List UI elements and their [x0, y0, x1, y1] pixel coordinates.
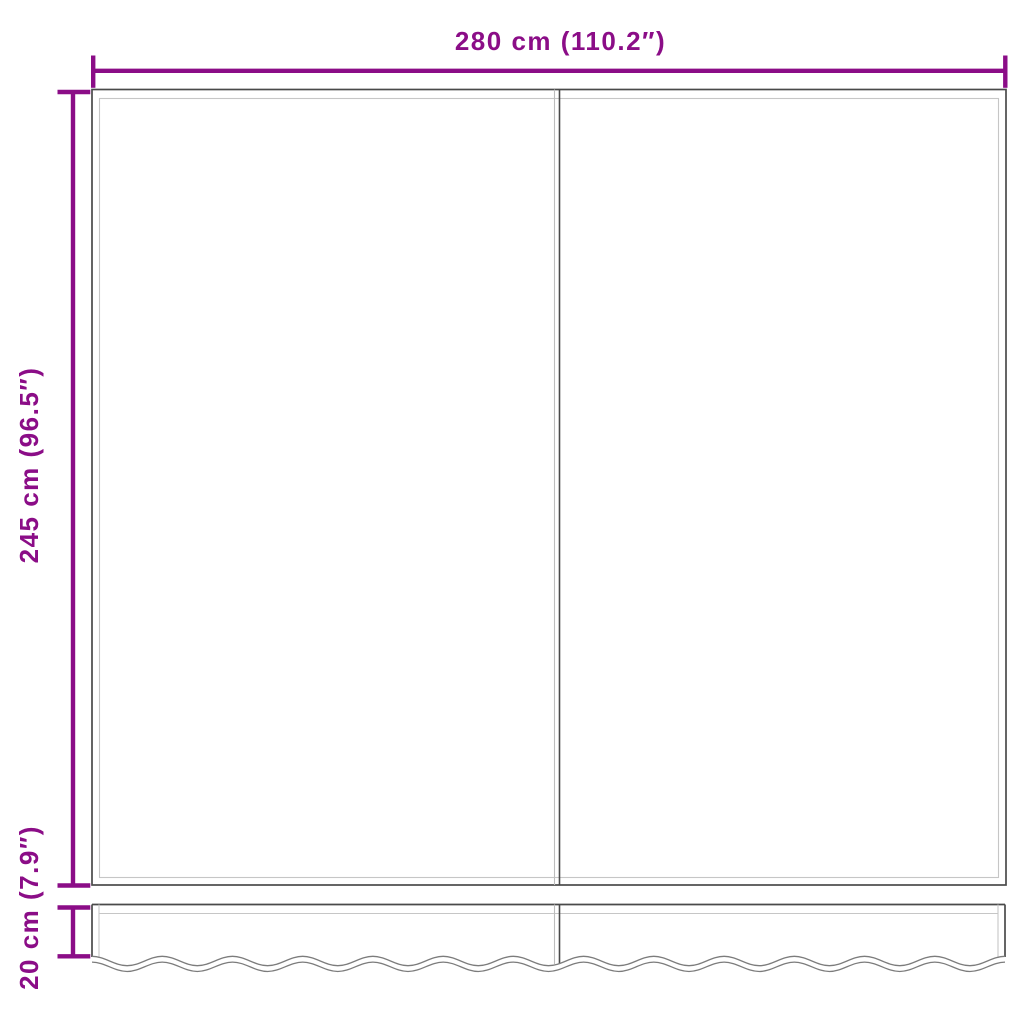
svg-text:20 cm (7.9″): 20 cm (7.9″) — [14, 825, 44, 990]
svg-text:280 cm (110.2″): 280 cm (110.2″) — [455, 26, 666, 56]
svg-text:245 cm (96.5″): 245 cm (96.5″) — [14, 367, 44, 564]
